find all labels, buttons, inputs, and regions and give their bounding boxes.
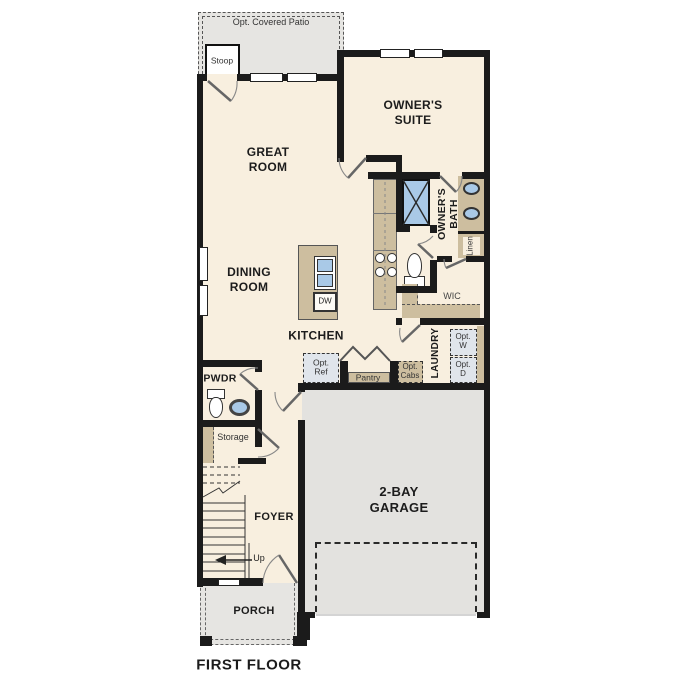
vanity-sink: [463, 207, 480, 220]
label-laundry: LAUNDRY: [430, 328, 443, 379]
label-garage: 2-BAY GARAGE: [370, 484, 429, 517]
stove-burner: [387, 267, 397, 277]
wall-segment: [238, 458, 266, 464]
label-opt-covered-patio: Opt. Covered Patio: [233, 18, 310, 28]
label-opt-w: Opt. W: [455, 333, 470, 351]
stoop-door-opening: [207, 74, 237, 81]
wall-segment: [197, 420, 259, 427]
label-opt-d: Opt. D: [455, 361, 470, 379]
laundry-counter: [477, 326, 484, 383]
stove-burner: [387, 253, 397, 263]
front-door-step: [218, 579, 240, 586]
wall-segment: [197, 360, 262, 367]
kitchen-counter-divider: [373, 213, 397, 214]
wall-segment: [484, 50, 490, 618]
wall-segment: [396, 225, 410, 232]
wall-segment: [197, 74, 203, 587]
shower: [402, 179, 430, 226]
window: [199, 247, 208, 281]
island-sink-basin: [317, 259, 333, 272]
floor-plan: Opt. Covered Patio Stoop GREAT ROOM OWNE…: [0, 0, 687, 687]
label-stoop: Stoop: [211, 56, 233, 65]
island-sink-basin: [317, 274, 333, 287]
pwdr-sink: [229, 399, 250, 416]
bath-toilet-bowl: [407, 253, 422, 278]
wall-segment: [477, 612, 490, 618]
label-dw: DW: [318, 298, 331, 307]
label-kitchen: KITCHEN: [288, 329, 343, 344]
wall-segment: [462, 172, 490, 179]
wall-segment: [458, 231, 484, 234]
wall-segment: [437, 256, 452, 262]
stove-burner: [375, 253, 385, 263]
label-owners-bath: OWNER'S BATH: [436, 188, 460, 240]
label-up: Up: [253, 554, 265, 564]
wall-segment: [340, 361, 348, 383]
wall-segment: [255, 360, 262, 372]
porch-post: [293, 636, 307, 646]
window: [414, 49, 443, 58]
kitchen-counter-divider: [373, 250, 397, 251]
wall-segment: [396, 318, 402, 325]
label-foyer: FOYER: [254, 511, 293, 525]
wall-segment: [396, 179, 402, 231]
window: [380, 49, 410, 58]
window: [250, 73, 283, 82]
garage-door-setback: [315, 542, 477, 612]
porch-post: [200, 636, 212, 646]
wall-segment: [390, 361, 398, 383]
wall-segment: [300, 383, 490, 390]
kitchen-counter: [373, 179, 397, 310]
wall-segment: [298, 420, 305, 612]
stove-burner: [375, 267, 385, 277]
label-wic: WIC: [443, 292, 461, 302]
label-opt-ref: Opt. Ref: [313, 359, 329, 378]
wall-segment: [420, 318, 484, 325]
storage-shelf: [203, 427, 214, 463]
wall-segment: [298, 383, 305, 392]
label-owners-suite: OWNER'S SUITE: [384, 98, 443, 128]
label-first-floor: FIRST FLOOR: [196, 657, 302, 676]
label-dining-room: DINING ROOM: [227, 265, 271, 295]
window: [287, 73, 317, 82]
window: [199, 285, 208, 316]
label-storage: Storage: [217, 433, 249, 443]
wall-segment: [368, 172, 396, 179]
label-pantry: Pantry: [356, 373, 381, 382]
wall-segment: [337, 50, 344, 162]
label-opt-cabs: Opt. Cabs: [401, 363, 420, 381]
wall-segment: [255, 427, 262, 447]
pwdr-toilet-bowl: [209, 397, 223, 418]
vanity-sink: [463, 182, 480, 195]
wall-segment: [396, 172, 440, 179]
label-porch: PORCH: [233, 605, 274, 619]
wall-segment: [396, 286, 437, 293]
wall-segment: [466, 256, 484, 262]
label-pwdr: PWDR: [203, 372, 236, 385]
label-great-room: GREAT ROOM: [247, 145, 290, 175]
label-linen: Linen: [467, 236, 476, 256]
wic-shelf-bottom: [402, 304, 480, 318]
